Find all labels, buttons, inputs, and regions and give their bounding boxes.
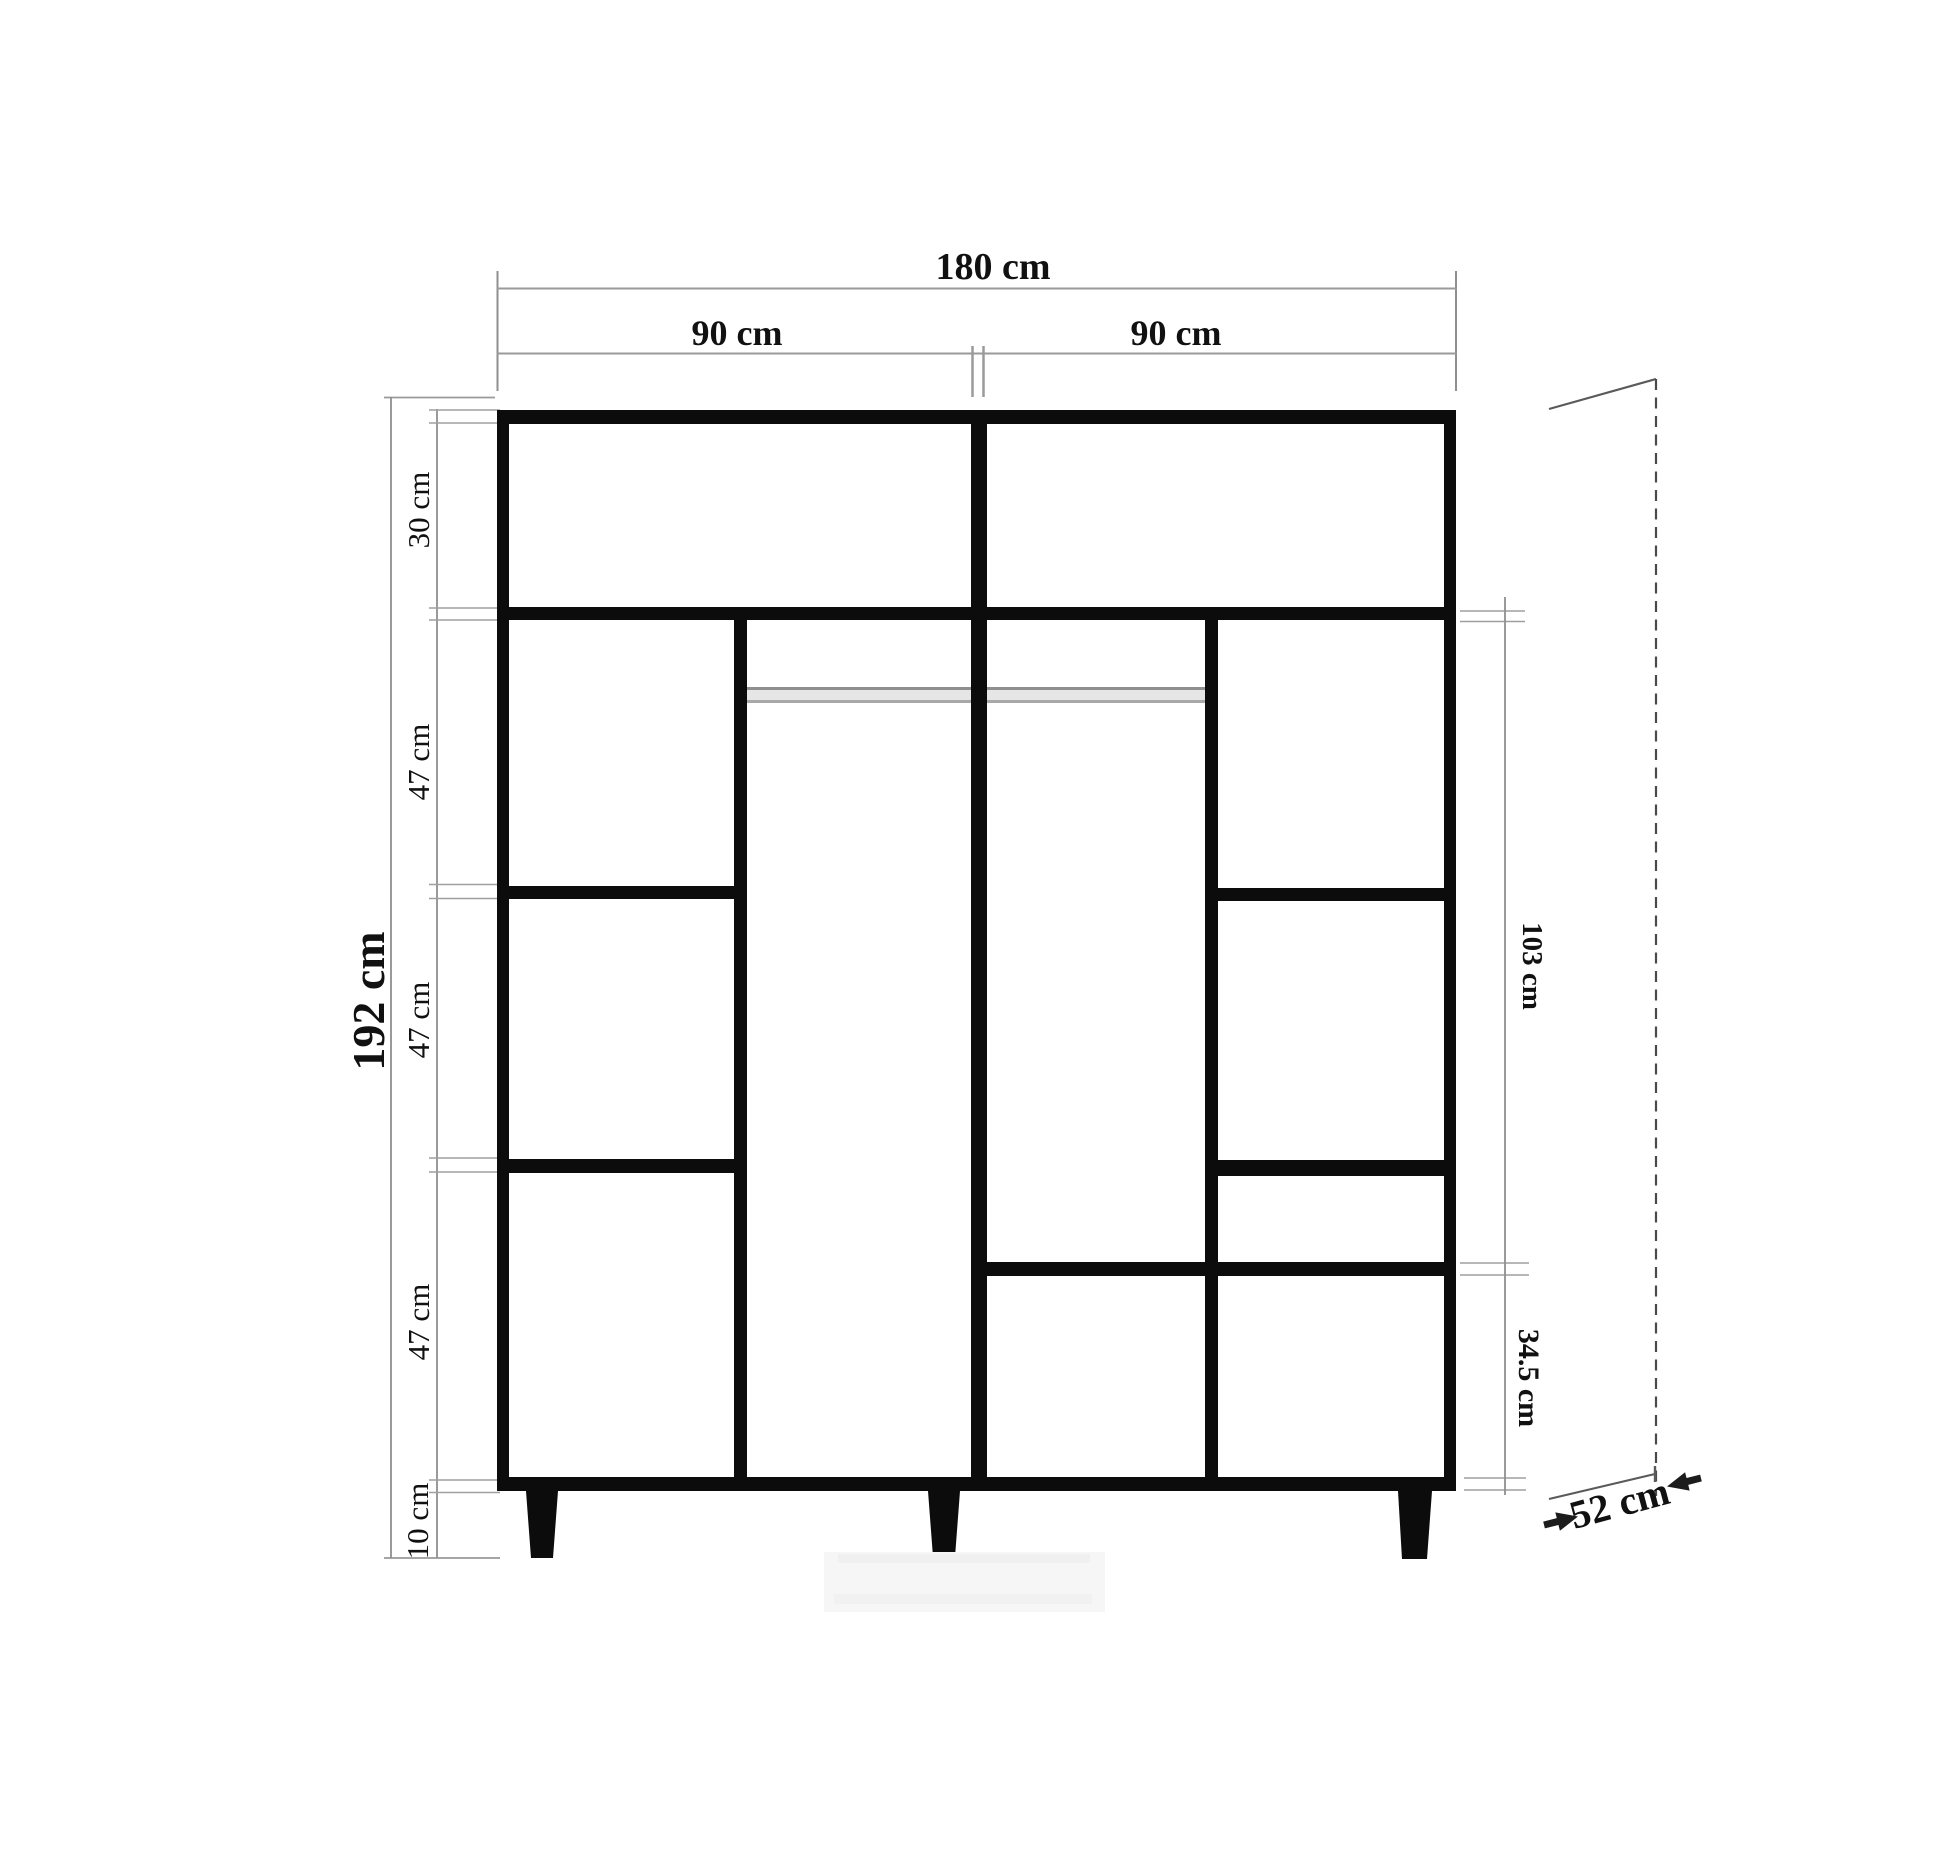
svg-text:47 cm: 47 cm xyxy=(401,1284,436,1361)
svg-text:90 cm: 90 cm xyxy=(1131,313,1222,353)
svg-text:103 cm: 103 cm xyxy=(1516,922,1548,1010)
svg-text:180 cm: 180 cm xyxy=(935,246,1050,288)
svg-text:47 cm: 47 cm xyxy=(401,982,436,1059)
svg-text:90 cm: 90 cm xyxy=(692,313,783,353)
svg-text:47 cm: 47 cm xyxy=(401,724,436,801)
svg-text:34.5 cm: 34.5 cm xyxy=(1512,1329,1545,1427)
svg-text:30 cm: 30 cm xyxy=(401,472,436,549)
svg-text:192 cm: 192 cm xyxy=(343,931,394,1070)
svg-text:10 cm: 10 cm xyxy=(400,1483,435,1560)
